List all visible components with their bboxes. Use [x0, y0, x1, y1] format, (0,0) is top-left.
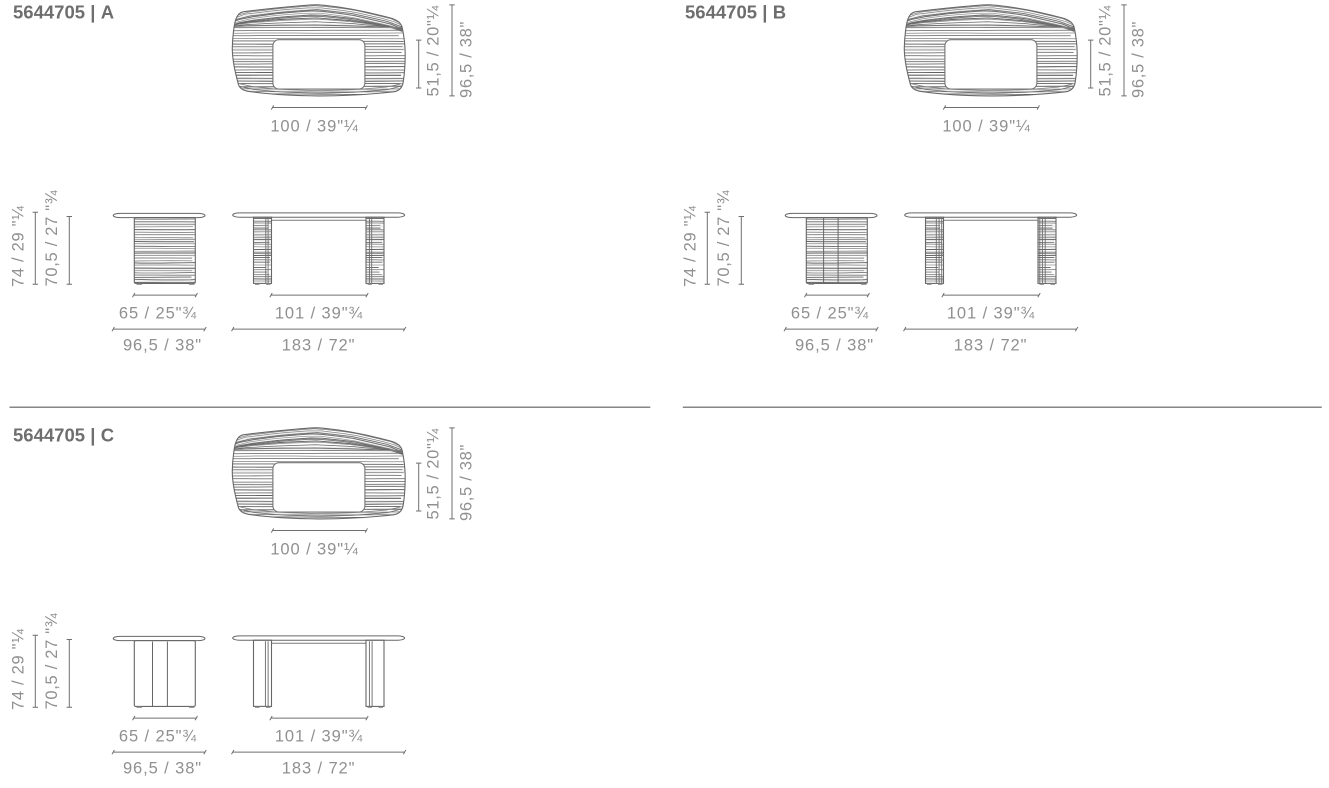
svg-text:96,5 / 38": 96,5 / 38" [123, 760, 202, 778]
svg-text:101 / 39"¾: 101 / 39"¾ [275, 305, 363, 323]
svg-text:100 / 39"¼: 100 / 39"¼ [270, 541, 358, 559]
svg-text:183 / 72": 183 / 72" [282, 760, 356, 778]
svg-text:70,5 / 27 "¾: 70,5 / 27 "¾ [43, 613, 61, 710]
svg-text:101 / 39"¾: 101 / 39"¾ [275, 728, 363, 746]
svg-text:183 / 72": 183 / 72" [954, 337, 1028, 355]
svg-text:74 / 29 "¼: 74 / 29 "¼ [10, 628, 28, 710]
svg-text:65 / 25"¾: 65 / 25"¾ [791, 305, 869, 323]
svg-text:70,5 / 27 "¾: 70,5 / 27 "¾ [715, 190, 733, 287]
svg-text:96,5 / 38": 96,5 / 38" [123, 337, 202, 355]
svg-text:51,5 / 20"¼: 51,5 / 20"¼ [1097, 5, 1115, 97]
svg-text:65 / 25"¾: 65 / 25"¾ [119, 728, 197, 746]
svg-text:101 / 39"¾: 101 / 39"¾ [947, 305, 1035, 323]
svg-text:96,5 / 38": 96,5 / 38" [795, 337, 874, 355]
svg-text:96,5 / 38": 96,5 / 38" [1130, 21, 1148, 98]
svg-text:100 / 39"¼: 100 / 39"¼ [270, 118, 358, 136]
svg-text:5644705 | B: 5644705 | B [685, 2, 786, 23]
svg-text:70,5 / 27 "¾: 70,5 / 27 "¾ [43, 190, 61, 287]
svg-text:51,5 / 20"¼: 51,5 / 20"¼ [425, 428, 443, 520]
svg-text:96,5 / 38": 96,5 / 38" [458, 21, 476, 98]
svg-text:5644705 | A: 5644705 | A [13, 2, 114, 23]
svg-text:5644705 | C: 5644705 | C [13, 425, 114, 446]
svg-text:74 / 29 "¼: 74 / 29 "¼ [682, 205, 700, 287]
svg-text:183 / 72": 183 / 72" [282, 337, 356, 355]
svg-text:96,5 / 38": 96,5 / 38" [458, 444, 476, 521]
svg-text:65 / 25"¾: 65 / 25"¾ [119, 305, 197, 323]
svg-text:74 / 29 "¼: 74 / 29 "¼ [10, 205, 28, 287]
svg-text:100 / 39"¼: 100 / 39"¼ [942, 118, 1030, 136]
svg-text:51,5 / 20"¼: 51,5 / 20"¼ [425, 5, 443, 97]
